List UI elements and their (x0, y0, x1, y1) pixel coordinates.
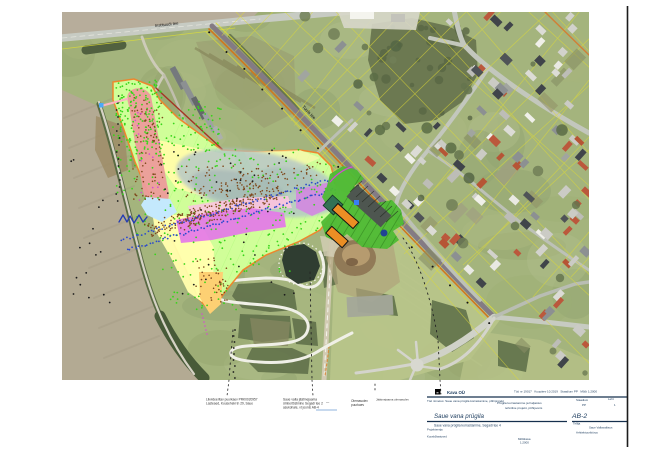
svg-text:Kooskõlastused: Kooskõlastused (427, 435, 447, 439)
svg-text:Töö nr 19017 Kuupäev 10.2019: Töö nr 19017 Kuupäev 10.2019 Staadium PP… (514, 390, 597, 394)
svg-text:AB-2: AB-2 (571, 413, 587, 420)
svg-text:Arhitektuuribüroo: Arhitektuuribüroo (576, 431, 598, 435)
svg-text:Jäätmejaama olemasolev: Jäätmejaama olemasolev (376, 398, 409, 402)
svg-text:Töö nimetus: Saue vana prügila: Töö nimetus: Saue vana prügila korrastam… (427, 399, 504, 403)
svg-text:Leht: Leht (608, 397, 614, 401)
svg-text:Projekteerija: Projekteerija (427, 428, 443, 432)
svg-text:Staadium: Staadium (576, 398, 589, 402)
svg-text:PP: PP (582, 403, 586, 407)
svg-text:Saue vana prügila korrastamine: Saue vana prügila korrastamine, Segadi t… (434, 424, 501, 428)
svg-text:Kava OÜ: Kava OÜ (447, 390, 465, 395)
svg-text:Saue Vallavalitsus: Saue Vallavalitsus (589, 426, 613, 430)
svg-text:puurkaev: puurkaev (351, 403, 365, 407)
svg-text:1:2000: 1:2000 (520, 441, 529, 445)
svg-text:Saue vana prügila: Saue vana prügila (434, 413, 484, 420)
svg-text:Lasteaed, Kuuseheki tn 29, Sau: Lasteaed, Kuuseheki tn 29, Saue (206, 402, 253, 406)
svg-text:asukohale, vt joonis AB-4: asukohale, vt joonis AB-4 (283, 406, 319, 410)
svg-text:Prügila korrastamine ja haljas: Prügila korrastamine ja haljastus (497, 401, 542, 405)
svg-text:Tellija: Tellija (573, 422, 581, 426)
svg-text:tehniline projekt, põhijoonis: tehniline projekt, põhijoonis (505, 406, 543, 410)
